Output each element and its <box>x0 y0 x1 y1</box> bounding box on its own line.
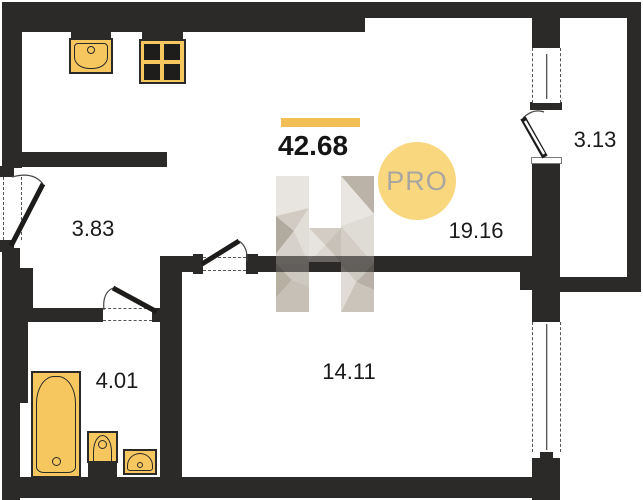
room-label-bedroom: 14.11 <box>322 359 375 385</box>
kitchen-sink-drain-icon <box>87 46 95 54</box>
window-tick-top <box>540 313 553 322</box>
stove <box>139 32 186 84</box>
total-area-label: 42.68 <box>278 130 348 162</box>
bedroom-window <box>532 322 561 452</box>
balcony-threshold <box>531 157 562 164</box>
wall-hall-pier <box>13 268 33 310</box>
bathroom-door-recess <box>103 308 152 321</box>
room-label-balcony: 3.13 <box>574 127 617 153</box>
wall-bottom <box>2 477 560 498</box>
wall-top-thin <box>365 2 641 18</box>
entry-jamb-top <box>0 166 14 177</box>
wall-balcony-bottom <box>555 277 641 292</box>
toilet <box>87 431 118 478</box>
bathtub <box>31 371 81 478</box>
balcony-window <box>532 48 561 103</box>
toilet-dot-icon <box>98 440 107 449</box>
bedroom-jamb-right <box>246 254 258 274</box>
bedroom-window-pane <box>546 324 548 450</box>
bathtub-drain-icon <box>52 457 61 466</box>
wall-mid-left <box>160 256 193 272</box>
wall-below-window <box>532 458 560 500</box>
wall-bathroom-top <box>2 308 103 322</box>
kitchen-sink <box>69 32 113 74</box>
wall-right <box>627 2 641 292</box>
stove-burners-icon <box>144 44 180 80</box>
bedroom-jamb-left <box>193 254 203 274</box>
room-label-bathroom: 4.01 <box>96 368 139 394</box>
wall-mid-right <box>258 256 532 272</box>
pro-badge-text: PRO <box>386 166 448 197</box>
wall-balcony-sep-bottom <box>532 163 560 322</box>
wall-balcony-sep-top <box>532 14 560 48</box>
h-logo-watermark <box>276 176 374 312</box>
floor-plan: 42.68 3.83 4.01 14.11 19.16 3.13 PRO <box>0 0 643 500</box>
entrance-door-recess <box>3 177 22 240</box>
balcony-window-pane <box>546 54 548 99</box>
toilet-base <box>88 463 117 478</box>
wall-left-upper <box>2 2 22 168</box>
pro-badge: PRO <box>378 142 456 220</box>
bedroom-door-recess <box>203 257 246 271</box>
room-label-hallway: 3.83 <box>72 216 115 242</box>
washbasin-drain-icon <box>137 462 143 468</box>
total-area-accent-bar <box>281 118 360 127</box>
room-label-kitchen-living: 19.16 <box>448 218 503 244</box>
wall-interior-vertical <box>160 256 182 478</box>
wall-left-thick <box>2 322 28 403</box>
wall-top-thick <box>2 2 365 32</box>
washbasin <box>123 449 157 475</box>
wall-hallway-top <box>2 152 167 167</box>
wall-junction-pier <box>520 256 532 290</box>
